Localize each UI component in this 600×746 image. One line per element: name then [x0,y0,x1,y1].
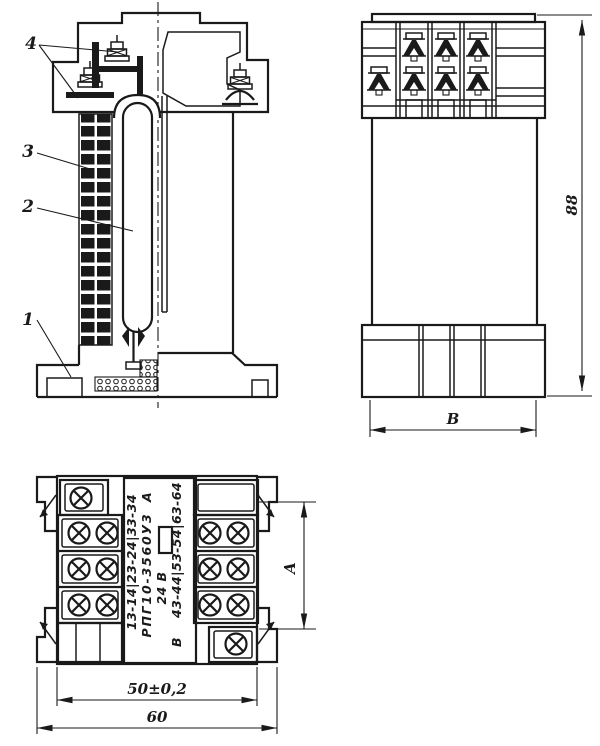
armature-plate [126,362,141,369]
molded-base-hatch [95,377,157,391]
dim-50: 50±0,2 [57,667,257,706]
terminal-screw-icon [226,634,247,655]
plunger [123,103,152,332]
foot-recess [252,380,268,397]
top-cap [372,14,535,22]
terminal-screw-icon [71,488,92,509]
right-foot [158,353,277,397]
terminal-box [60,480,108,515]
terminal-screw-icon [228,559,249,580]
engineering-drawing: 4 3 2 1 [0,0,600,746]
mounting-ear [37,477,57,531]
clamp-terminal-icon [434,33,458,61]
latch-arrow-icon [40,622,56,644]
molded-base-hatch [140,360,157,377]
mounting-ear [257,477,277,531]
mounting-ear [257,608,277,662]
terminal-screw-icon [97,559,118,580]
coil-winding [79,114,112,345]
terminal-cell [198,484,254,511]
left-foot [37,365,79,397]
terminal-screw-icon [97,595,118,616]
clamp-terminal-icon [434,67,458,95]
relay-drawing-canvas: 4 3 2 1 [0,0,600,746]
terminal-column-dividers [396,22,496,118]
nameplate-voltage: 24 В [154,572,169,605]
latch-arrow-icon [40,495,56,517]
terminal-base [470,100,486,118]
clamp-terminal-icon [402,33,426,61]
head-cavity [163,32,240,106]
terminal-box [58,623,122,662]
nameplate: 13-14|23-24|33-34 А РПГ10-3560У3 24 В 43… [124,478,196,663]
nameplate-contacts-left: 13-14|23-24|33-34 [124,494,139,630]
nameplate-contacts-right: 43-44|53-54|63-64 [169,482,184,619]
dim-60-label: 60 [147,708,168,726]
clamp-terminal-icon [466,33,490,61]
clamp-terminal-icon [367,67,391,95]
section-view: 4 3 2 1 [21,2,277,408]
side-view: 88 В [362,14,592,437]
latch-arrow-icon [258,495,274,517]
mounting-ear [37,608,57,662]
foot-recess [47,378,82,397]
terminal-screw-icon [228,523,249,544]
terminal-screw-icon [228,595,249,616]
terminal-screw-icon [69,559,90,580]
screw-terminal-icon [228,63,252,89]
dim-50-label: 50±0,2 [127,680,187,698]
nameplate-terminal-b: В [169,637,184,647]
clamp-terminal-icon [402,67,426,95]
screw-terminal-icon [105,35,129,61]
dim-88-label: 88 [563,194,581,215]
dim-a-label: А [281,562,299,575]
bottom-view: 13-14|23-24|33-34 А РПГ10-3560У3 24 В 43… [37,476,316,734]
latch-arrow-icon [258,622,274,644]
terminal-base [438,100,454,118]
terminal-screw-icon [69,595,90,616]
callout-1: 1 [22,310,34,330]
base-dividers [419,325,485,397]
terminal-screw-icon [200,559,221,580]
terminal-base [406,100,422,118]
dim-a: А [259,502,316,629]
terminal-screw-icon [200,595,221,616]
clamp-terminal-icon [466,67,490,95]
contact-bracket [99,66,137,72]
nameplate-terminal-a: А [139,492,154,503]
terminal-box [209,627,257,662]
dim-b-label: В [446,410,460,428]
armature-wing [122,327,129,347]
callout-3: 3 [22,142,34,162]
terminal-screw-icon [97,523,118,544]
terminal-screw-icon [200,523,221,544]
contact-bracket [66,92,114,98]
nameplate-model: РПГ10-3560У3 [139,513,154,638]
dim-b: В [370,400,536,437]
terminal-screw-icon [69,523,90,544]
callout-2: 2 [21,197,34,217]
callout-4: 4 [25,34,37,54]
terminal-box [194,480,258,515]
